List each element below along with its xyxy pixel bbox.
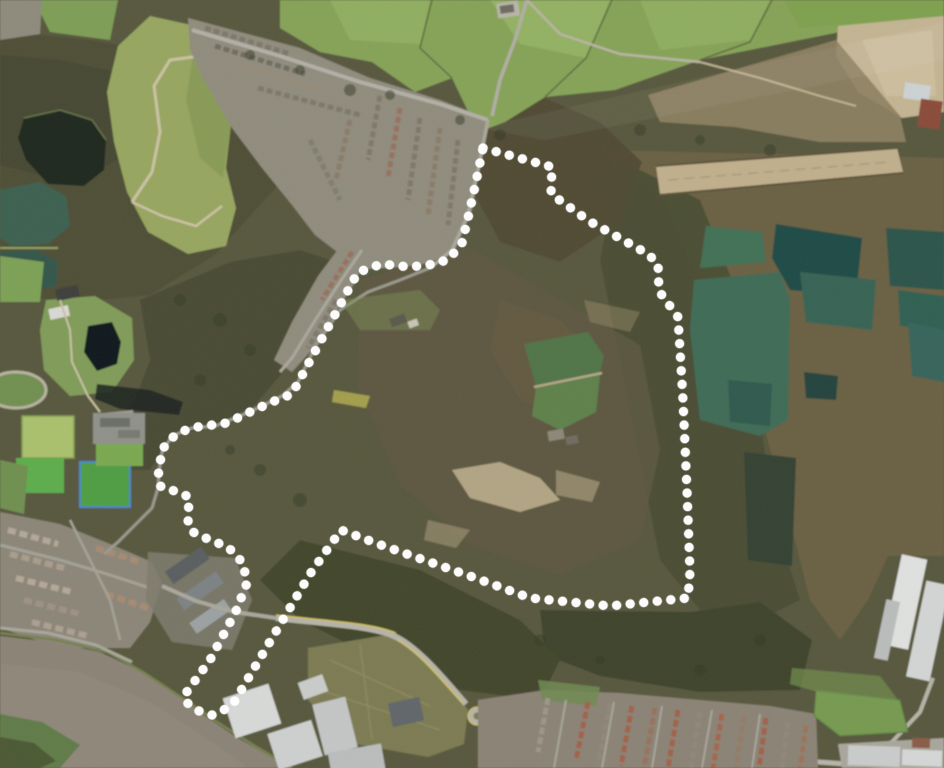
aerial-photo-stage [0,0,944,768]
aerial-map [0,0,944,768]
photo-grain-overlay [0,0,944,768]
